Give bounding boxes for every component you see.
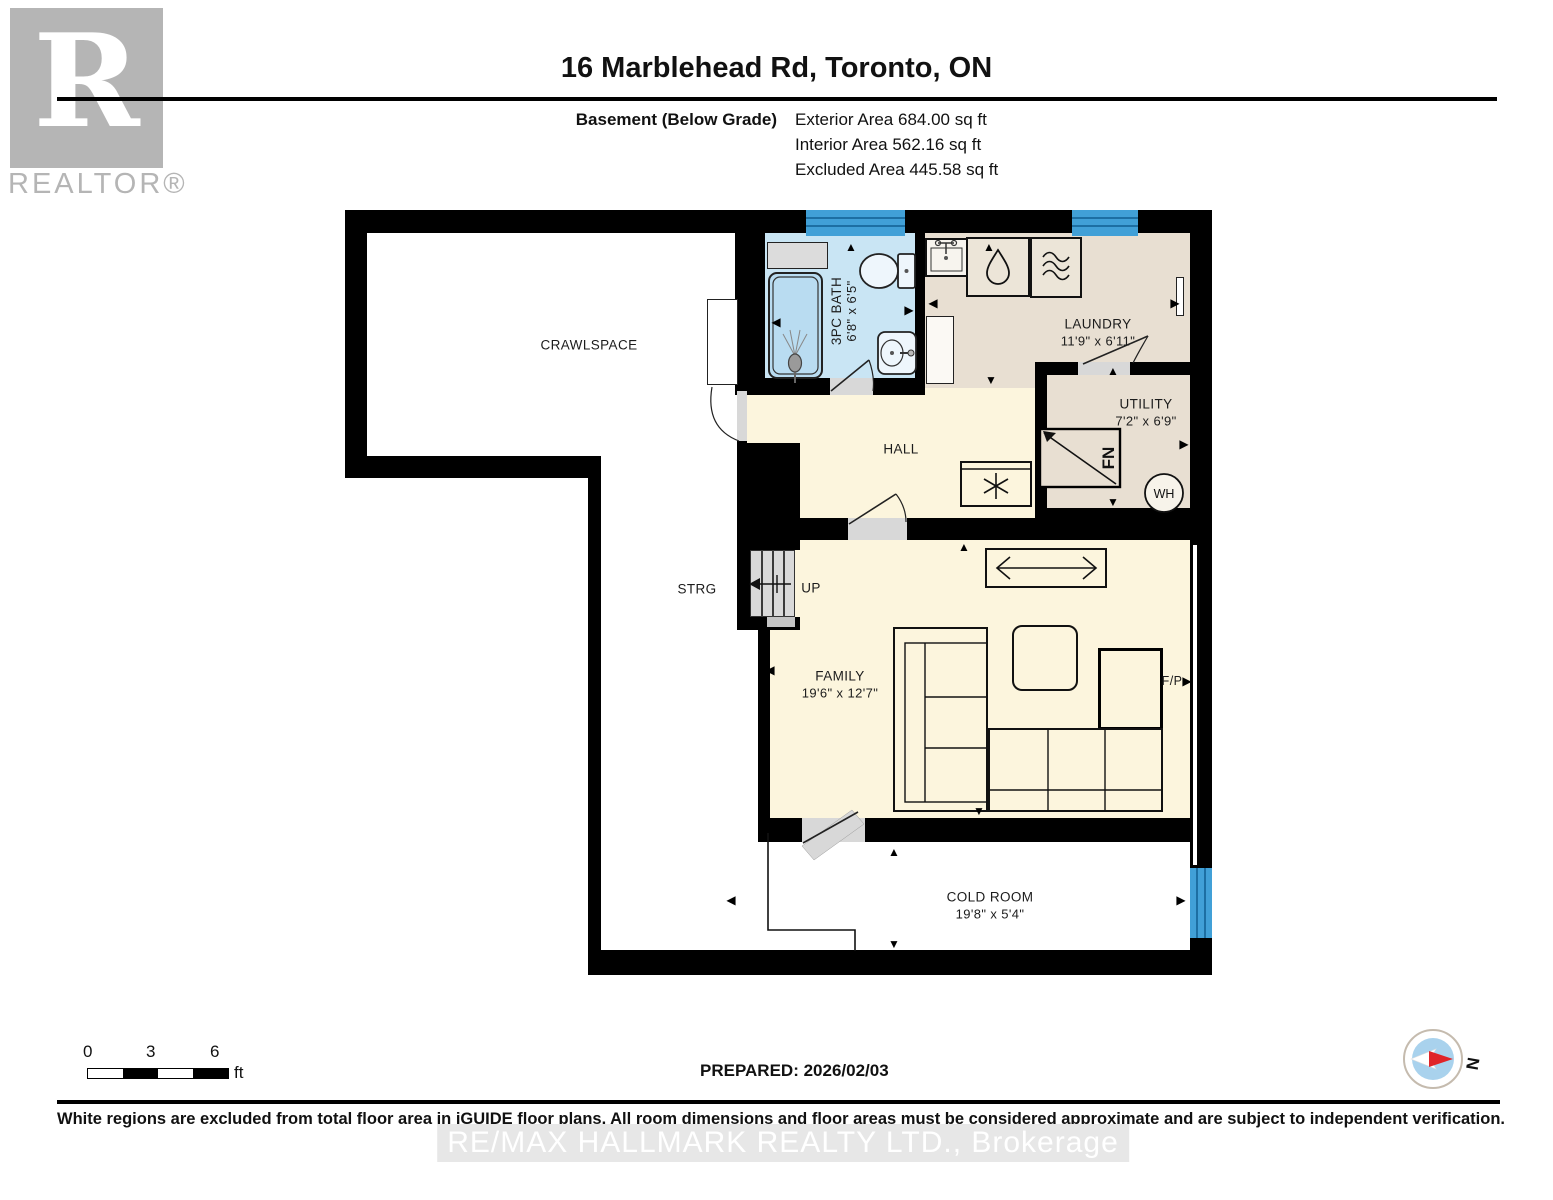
wall (737, 378, 830, 395)
room-label-hall: HALL (883, 442, 918, 457)
door-opening (848, 518, 907, 540)
room-dims-laundry: 11'9" x 6'11" (1061, 334, 1136, 349)
floor-label: Basement (Below Grade) (400, 110, 777, 130)
wall (1130, 362, 1190, 375)
wall (865, 818, 1212, 842)
door-opening (1078, 362, 1130, 375)
scale-tick-6: 6 (210, 1042, 219, 1062)
scale-unit: ft (234, 1063, 243, 1083)
scale-tick-3: 3 (146, 1042, 155, 1062)
down-arrow-icon: ▼ (888, 938, 900, 950)
coffee-table (1012, 625, 1078, 691)
wall (1035, 508, 1212, 523)
window (806, 210, 905, 236)
room-dims-utility: 7'2" x 6'9" (1115, 414, 1176, 429)
freezer (960, 461, 1032, 507)
right-arrow-icon: ▶ (904, 304, 913, 316)
utility-floor (1047, 375, 1190, 510)
up-arrow-icon: ▲ (958, 541, 970, 553)
room-label-coldroom: COLD ROOM (947, 890, 1034, 905)
room-label-laundry: LAUNDRY (1064, 317, 1131, 332)
stair-tread (772, 550, 774, 617)
fireplace-label: F/P (1162, 674, 1183, 688)
left-arrow-icon: ◀ (771, 316, 780, 328)
left-arrow-icon: ◀ (726, 894, 735, 906)
room-label-bath: 3PC BATH 6'8" x 6'5" (829, 277, 859, 345)
realtor-logo: R (10, 8, 163, 168)
wall (588, 456, 601, 975)
window-line (1072, 217, 1138, 219)
laundry-cabinet (926, 316, 954, 384)
area-excluded: Excluded Area 445.58 sq ft (795, 160, 998, 180)
left-arrow-icon: ◀ (928, 297, 937, 309)
scale-segment (123, 1069, 158, 1078)
crawlspace-door-leaf (707, 299, 738, 385)
room-dims-coldroom: 19'8" x 5'4" (956, 907, 1025, 922)
footer-rule (57, 1100, 1500, 1104)
wall (588, 950, 1212, 975)
down-arrow-icon: ▼ (985, 374, 997, 386)
window-line (806, 217, 905, 219)
door-opening (737, 391, 747, 441)
wall (345, 210, 367, 478)
room-label-storage: STRG (677, 582, 716, 597)
floor-plan-page: R REALTOR® 16 Marblehead Rd, Toronto, ON… (0, 0, 1553, 1200)
media-console (985, 548, 1107, 588)
room-label-bath-dims: 6'8" x 6'5" (844, 277, 859, 345)
door-opening (802, 818, 865, 842)
sofa-bed (893, 627, 988, 812)
right-arrow-icon: ▶ (1170, 297, 1179, 309)
scale-segment (158, 1069, 193, 1078)
page-title: 16 Marblehead Rd, Toronto, ON (0, 52, 1553, 85)
fireplace-chaise (1098, 648, 1163, 730)
bath-vanity (767, 242, 828, 269)
stair-tread (761, 550, 763, 617)
room-label-family: FAMILY (815, 669, 864, 684)
down-arrow-icon: ▼ (973, 805, 985, 817)
room-label-utility: UTILITY (1119, 397, 1172, 412)
window-line (1204, 868, 1206, 938)
compass-north-label: N (1462, 1056, 1483, 1071)
door-opening (830, 378, 873, 395)
up-arrow-icon: ▲ (1107, 365, 1119, 377)
compass-icon: N (1398, 1022, 1490, 1098)
up-arrow-icon: ▲ (888, 846, 900, 858)
window (1072, 210, 1138, 236)
wall-strip (1193, 545, 1197, 865)
stair-landing (767, 617, 795, 627)
wall (770, 518, 848, 540)
window-line (1072, 225, 1138, 227)
wall (737, 510, 750, 630)
stair-tread (783, 550, 785, 617)
up-arrow-icon: ▲ (845, 241, 857, 253)
room-dims-family: 19'6" x 12'7" (802, 686, 879, 701)
prepared-date: PREPARED: 2026/02/03 (700, 1061, 889, 1081)
wall (735, 210, 765, 395)
wall (345, 456, 601, 478)
window (1190, 868, 1212, 938)
scale-bar (87, 1068, 229, 1079)
realtor-wordmark: REALTOR® (8, 168, 188, 201)
area-exterior: Exterior Area 684.00 sq ft (795, 110, 987, 130)
scale-tick-0: 0 (83, 1042, 92, 1062)
window-line (1196, 868, 1198, 938)
right-arrow-icon: ▶ (1179, 438, 1188, 450)
up-arrow-icon: ▲ (983, 241, 995, 253)
stairs-up-label: UP (801, 581, 821, 596)
down-arrow-icon: ▼ (1107, 496, 1119, 508)
sectional-sofa (988, 728, 1163, 812)
scale-segment (88, 1069, 123, 1078)
window-line (806, 225, 905, 227)
room-label-bath-name: 3PC BATH (829, 277, 844, 345)
wall (1035, 362, 1047, 520)
right-arrow-icon: ▶ (1176, 894, 1185, 906)
wall (758, 818, 802, 842)
right-arrow-icon: ▶ (1182, 675, 1191, 687)
room-label-crawlspace: CRAWLSPACE (540, 338, 637, 353)
brokerage-watermark: RE/MAX HALLMARK REALTY LTD., Brokerage (437, 1124, 1129, 1162)
header-rule (57, 97, 1497, 101)
scale-segment (193, 1069, 228, 1078)
area-interior: Interior Area 562.16 sq ft (795, 135, 981, 155)
left-arrow-icon: ◀ (765, 664, 774, 676)
wall (915, 233, 925, 382)
wall (758, 627, 770, 818)
